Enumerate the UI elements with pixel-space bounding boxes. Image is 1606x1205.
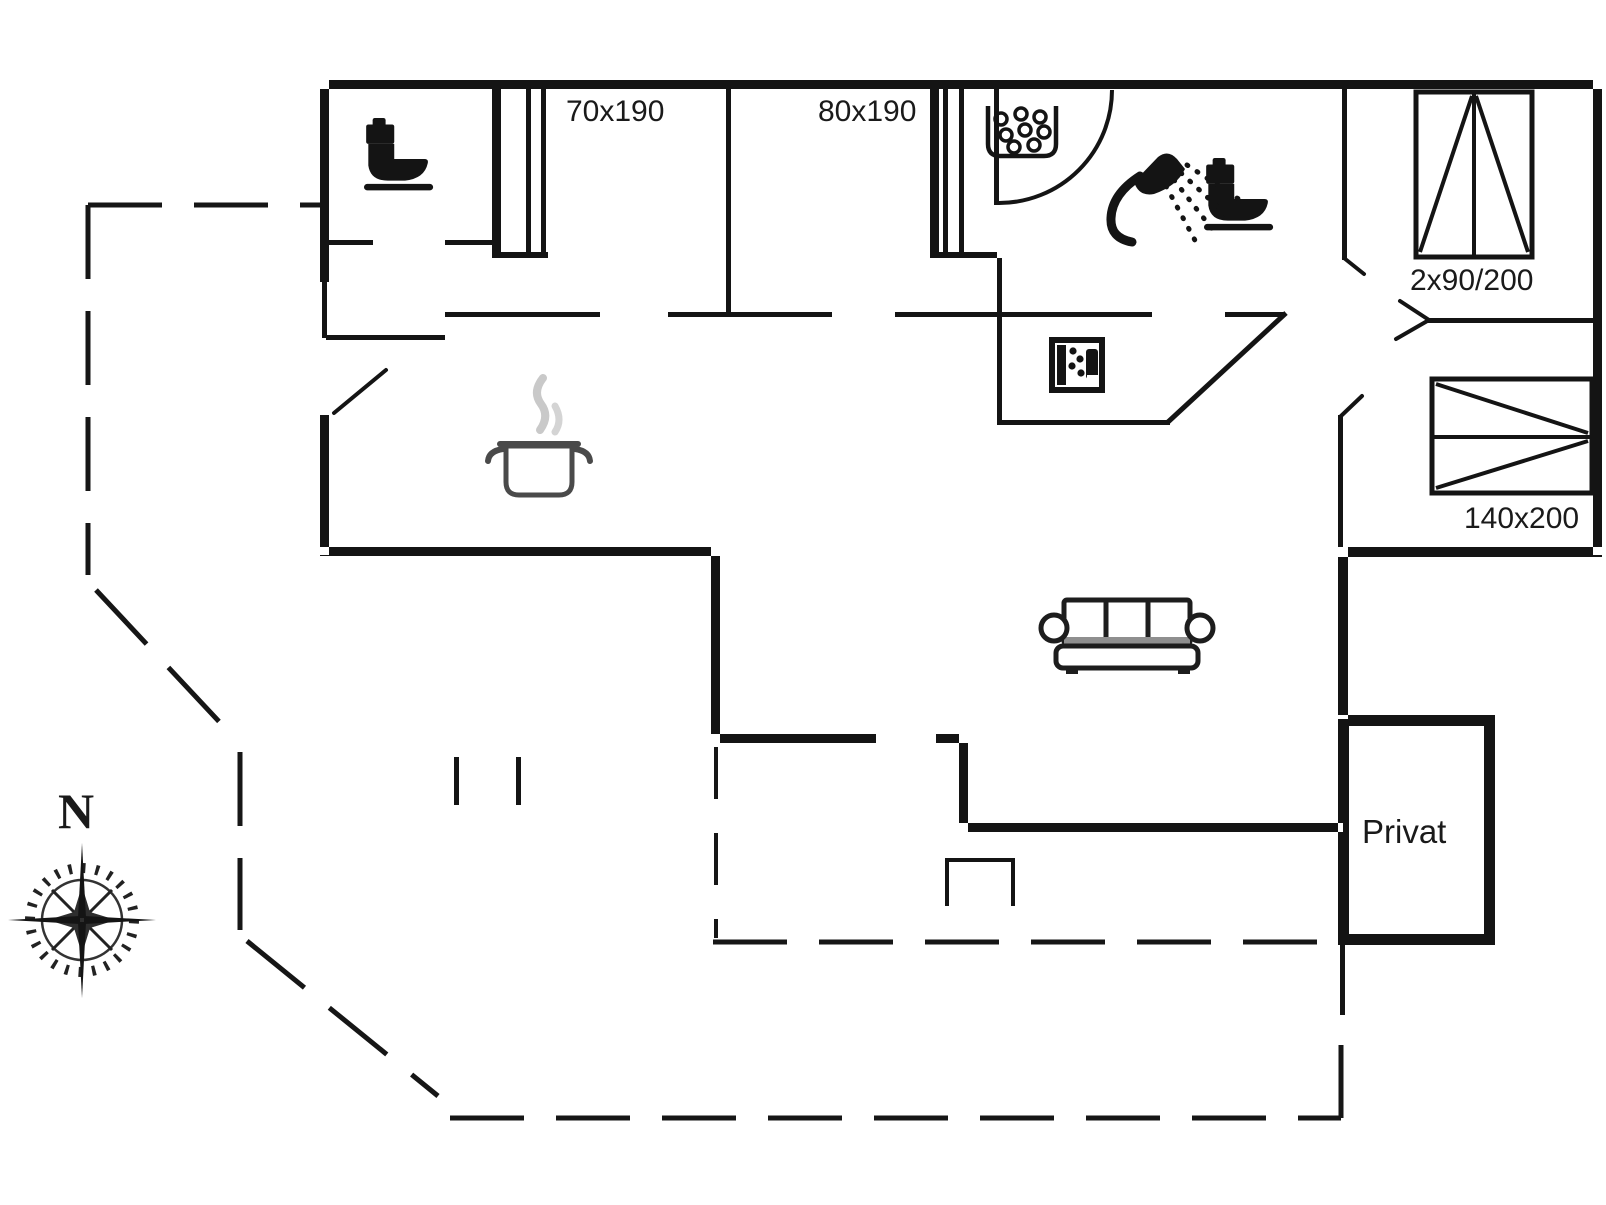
terrace-line-diagonal-1: [96, 590, 240, 744]
bench-outline: [947, 860, 1013, 906]
compass-north-label: N: [58, 783, 94, 839]
floor-plan-drawing: 70x190 80x190 2x90/200 140x200 Privat N: [0, 0, 1606, 1205]
wardrobe-room-door-tick: [1396, 301, 1429, 339]
pot-handle-left: [488, 449, 503, 461]
sofa-icon: [1041, 600, 1213, 674]
bed-size-label-2: 80x190: [818, 95, 916, 128]
toilet-icon: [364, 118, 433, 190]
wardrobe-icon: [1416, 92, 1532, 257]
wardrobe-size-label: 2x90/200: [1410, 264, 1533, 297]
steam: [537, 378, 545, 430]
pot-body: [506, 446, 572, 495]
washing-machine-icon: [1049, 337, 1105, 393]
terrace-line-diagonal-2: [247, 941, 438, 1096]
entrance-door-leaf: [334, 370, 386, 413]
cooking-pot-icon: [488, 378, 590, 495]
floor-plan: 70x190 80x190 2x90/200 140x200 Privat N: [0, 0, 1606, 1205]
steam: [555, 406, 559, 432]
washbasin-bubbles: [995, 108, 1050, 153]
bedroom-door-tick: [1341, 396, 1362, 416]
double-bed-size-label: 140x200: [1464, 502, 1579, 535]
private-room-label: Privat: [1362, 813, 1446, 850]
bathroom-diagonal-wall: [1168, 313, 1286, 422]
compass-rose-icon: [8, 843, 156, 998]
door-opening-marks: [334, 258, 1429, 416]
pot-handle-right: [575, 449, 590, 461]
toilet-icon: [1204, 158, 1273, 230]
bed-size-label-1: 70x190: [566, 95, 664, 128]
double-bed-icon: [1432, 379, 1592, 493]
hall-door-tick: [1344, 258, 1364, 274]
